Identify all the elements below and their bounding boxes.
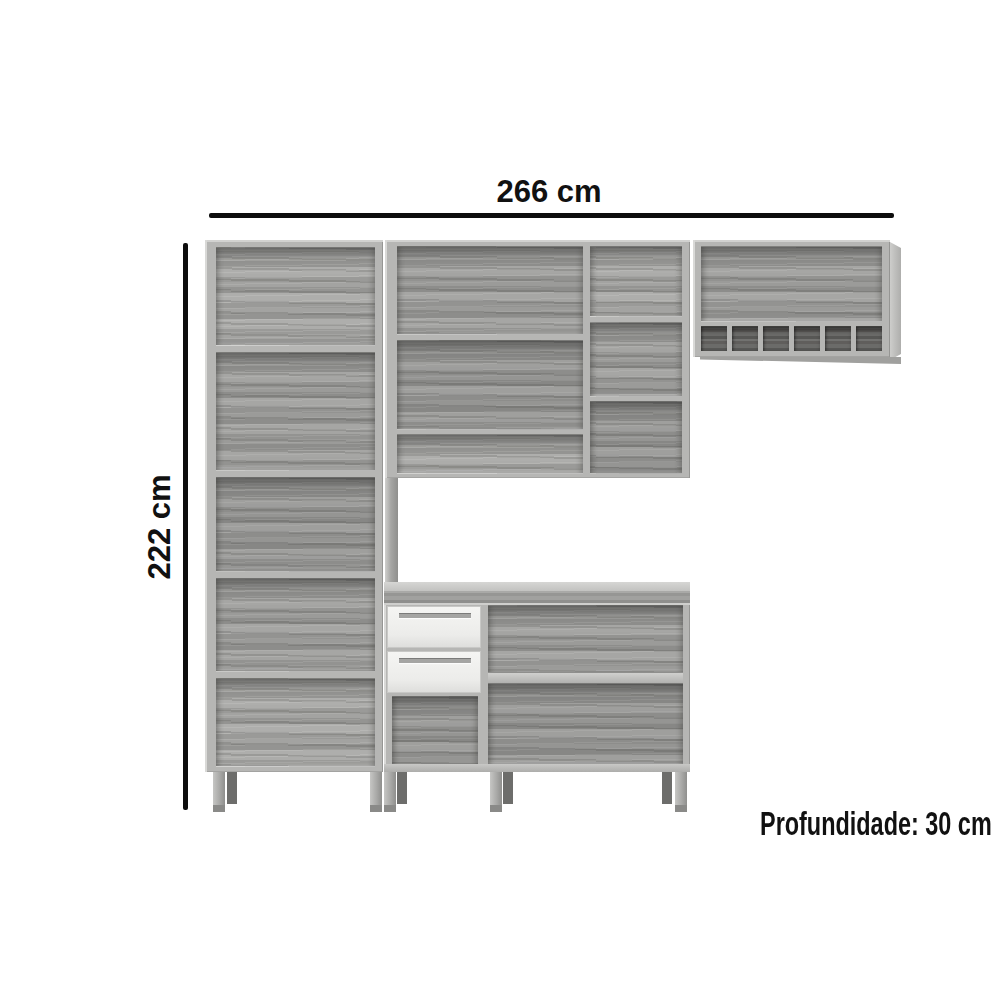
tall-cabinet-compartment-2 <box>216 352 375 471</box>
upper-cabinet-right-compartment-1 <box>590 246 682 317</box>
wall-cabinet-bottom-edge <box>700 357 901 364</box>
counter-bottom-board <box>384 764 690 772</box>
cabinet-back-leg <box>662 772 672 804</box>
drawer-1 <box>387 606 481 648</box>
wine-rack-cell <box>701 326 727 351</box>
cabinet-back-leg <box>397 772 407 804</box>
height-dimension-line <box>183 243 188 810</box>
counter-top-front-edge <box>384 591 690 605</box>
wine-rack-cell <box>856 326 882 351</box>
tall-cabinet-compartment-1 <box>216 247 375 346</box>
upper-cabinet-left-compartment-3 <box>397 434 583 474</box>
counter-right-upper-compartment <box>488 605 683 674</box>
product-dimension-diagram: 266 cm 222 cm Profundidade: 30 cm <box>0 0 1000 1000</box>
tall-cabinet-compartment-5 <box>216 678 375 767</box>
wine-rack-cell <box>763 326 789 351</box>
upper-cabinet-right-compartment-2 <box>590 322 682 397</box>
width-dimension-line <box>209 213 894 218</box>
base-counter-cabinet <box>384 582 690 772</box>
drawer-handle <box>399 613 471 618</box>
upper-middle-cabinet <box>385 240 690 478</box>
upper-cabinet-left-compartment-1 <box>397 246 583 335</box>
upper-cabinet-right-compartment-3 <box>590 401 682 474</box>
wall-cabinet-side-panel <box>890 242 901 360</box>
wine-rack-cell <box>794 326 820 351</box>
tall-cabinet-compartment-4 <box>216 578 375 672</box>
width-dimension-label: 266 cm <box>449 176 649 207</box>
cabinet-leg <box>213 772 225 812</box>
cabinet-leg <box>384 772 396 812</box>
wall-cabinet <box>693 240 890 357</box>
counter-top-surface <box>384 582 690 591</box>
drawer-handle <box>399 658 471 663</box>
cabinet-leg <box>370 772 382 812</box>
upper-cabinet-support-panel <box>385 478 398 587</box>
depth-dimension-label: Profundidade: 30 cm <box>760 807 992 840</box>
height-dimension-label: 222 cm <box>144 474 175 579</box>
wine-rack-cell <box>825 326 851 351</box>
cabinet-back-leg <box>227 772 237 804</box>
cabinet-leg <box>675 772 687 812</box>
drawer-2 <box>387 651 481 693</box>
upper-cabinet-left-compartment-2 <box>397 340 583 430</box>
tall-cabinet-compartment-3 <box>216 477 375 572</box>
wine-rack-cell <box>732 326 758 351</box>
wall-cabinet-compartment <box>701 246 882 322</box>
counter-left-compartment <box>392 696 478 766</box>
tall-cabinet <box>205 240 383 772</box>
cabinet-back-leg <box>503 772 513 804</box>
wine-rack <box>701 326 882 351</box>
counter-right-lower-compartment <box>488 683 683 766</box>
cabinet-leg <box>490 772 502 812</box>
